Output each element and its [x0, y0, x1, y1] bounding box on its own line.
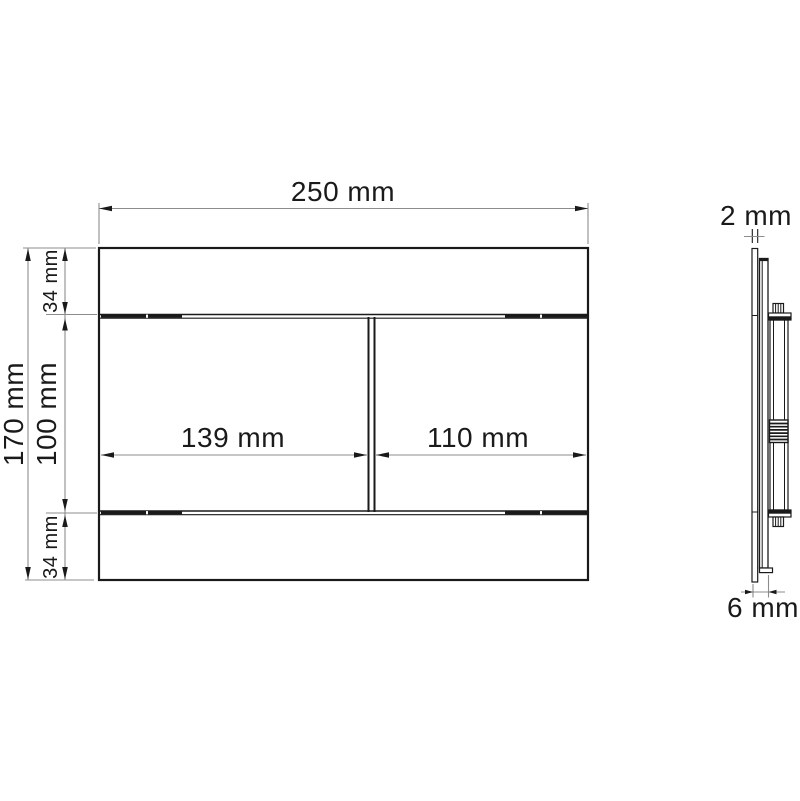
- spring-block: [770, 420, 789, 443]
- technical-linework: [0, 0, 800, 801]
- top-strip-dimension-label: 34 mm: [41, 249, 61, 313]
- bottom-fastener: [769, 510, 792, 527]
- dimension-width-250: [99, 203, 588, 244]
- front-view: [99, 248, 588, 580]
- plate-outline: [99, 248, 588, 580]
- mechanism-rod: [770, 320, 788, 510]
- right-button-dimension-label: 110 mm: [427, 424, 529, 452]
- plate-thickness-dimension-label: 2 mm: [720, 202, 792, 230]
- dimension-thickness-2: [744, 229, 765, 243]
- middle-height-dimension-label: 100 mm: [33, 362, 61, 466]
- depth-dimension-label: 6 mm: [727, 594, 799, 622]
- bottom-strip-dimension-label: 34 mm: [41, 515, 61, 579]
- side-plate: [752, 249, 758, 583]
- left-button-dimension-label: 139 mm: [181, 424, 285, 452]
- height-dimension-label: 170 mm: [0, 362, 28, 466]
- top-fastener: [769, 304, 792, 321]
- drawing-canvas: 250 mm 170 mm 34 mm 100 mm 34 mm 139 mm …: [0, 0, 800, 801]
- width-dimension-label: 250 mm: [291, 178, 395, 206]
- side-view: [741, 229, 791, 598]
